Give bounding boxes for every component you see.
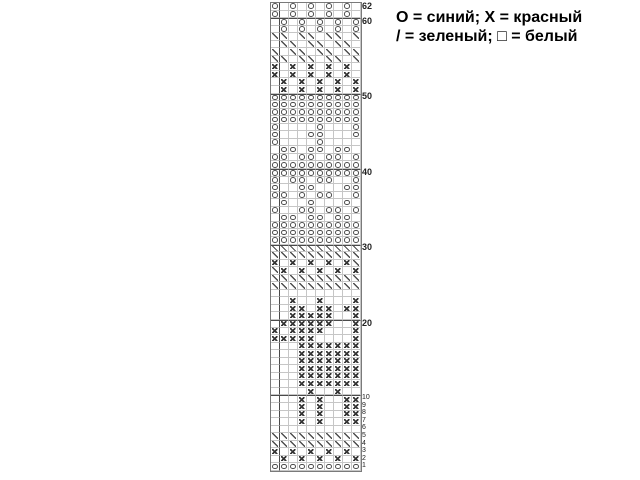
- chart-cell: [307, 94, 316, 102]
- chart-cell: [334, 71, 343, 79]
- chart-cell: [334, 86, 343, 94]
- chart-cell: [298, 343, 307, 351]
- chart-cell: [316, 411, 325, 419]
- chart-cell: [325, 116, 334, 124]
- chart-cell: [334, 373, 343, 381]
- chart-cell: [298, 101, 307, 109]
- chart-cell: [316, 275, 325, 283]
- chart-cell: [334, 109, 343, 117]
- chart-cell: [325, 290, 334, 298]
- chart-cell: [307, 275, 316, 283]
- chart-cell: [352, 282, 361, 290]
- chart-cell: [343, 169, 352, 177]
- chart-cell: [334, 18, 343, 26]
- chart-cell: [289, 214, 298, 222]
- chart-cell: [352, 350, 361, 358]
- chart-cell: [334, 222, 343, 230]
- chart-cell: [280, 11, 289, 19]
- chart-cell: [280, 297, 289, 305]
- chart-cell: [334, 48, 343, 56]
- chart-cell: [289, 116, 298, 124]
- chart-cell: [343, 41, 352, 49]
- chart-cell: [307, 320, 316, 328]
- chart-cell: [280, 78, 289, 86]
- chart-cell: [289, 433, 298, 441]
- chart-cell: [334, 56, 343, 64]
- chart-cell: [316, 71, 325, 79]
- chart-cell: [280, 365, 289, 373]
- chart-cell: [352, 192, 361, 200]
- chart-cell: [271, 3, 280, 11]
- chart-cell: [271, 41, 280, 49]
- chart-cell: [271, 275, 280, 283]
- chart-cell: [325, 63, 334, 71]
- chart-cell: [316, 78, 325, 86]
- chart-cell: [334, 365, 343, 373]
- chart-cell: [298, 11, 307, 19]
- chart-cell: [325, 441, 334, 449]
- chart-cell: [280, 154, 289, 162]
- chart-cell: [298, 441, 307, 449]
- chart-cell: [298, 426, 307, 434]
- chart-cell: [271, 33, 280, 41]
- chart-cell: [280, 328, 289, 336]
- chart-cell: [334, 116, 343, 124]
- chart-cell: [307, 101, 316, 109]
- chart-cell: [298, 395, 307, 403]
- chart-cell: [343, 101, 352, 109]
- chart-cell: [325, 71, 334, 79]
- chart-cell: [307, 365, 316, 373]
- chart-cell: [271, 11, 280, 19]
- chart-cell: [271, 433, 280, 441]
- chart-cell: [298, 116, 307, 124]
- chart-cell: [316, 365, 325, 373]
- chart-cell: [298, 260, 307, 268]
- row-number-label: 60: [362, 16, 372, 26]
- chart-cell: [334, 199, 343, 207]
- chart-cell: [298, 18, 307, 26]
- chart-cell: [298, 177, 307, 185]
- legend-line-2: / = зеленый; □ = белый: [396, 27, 582, 46]
- chart-cell: [289, 426, 298, 434]
- chart-cell: [271, 441, 280, 449]
- chart-cell: [289, 237, 298, 245]
- chart-cell: [316, 433, 325, 441]
- chart-cell: [316, 86, 325, 94]
- chart-cell: [334, 214, 343, 222]
- chart-cell: [316, 101, 325, 109]
- chart-cell: [343, 297, 352, 305]
- chart-cell: [352, 358, 361, 366]
- chart-cell: [271, 207, 280, 215]
- chart-cell: [298, 275, 307, 283]
- chart-cell: [352, 131, 361, 139]
- chart-cell: [289, 305, 298, 313]
- chart-cell: [298, 33, 307, 41]
- chart-cell: [271, 26, 280, 34]
- chart-cell: [334, 177, 343, 185]
- chart-cell: [316, 116, 325, 124]
- chart-cell: [280, 124, 289, 132]
- chart-cell: [271, 86, 280, 94]
- chart-cell: [343, 71, 352, 79]
- chart-cell: [343, 116, 352, 124]
- chart-cell: [316, 328, 325, 336]
- chart-cell: [352, 411, 361, 419]
- chart-cell: [307, 411, 316, 419]
- chart-cell: [271, 184, 280, 192]
- chart-cell: [334, 358, 343, 366]
- chart-cell: [343, 448, 352, 456]
- chart-cell: [343, 161, 352, 169]
- chart-cell: [307, 161, 316, 169]
- chart-cell: [325, 418, 334, 426]
- chart-cell: [280, 3, 289, 11]
- chart-cell: [352, 418, 361, 426]
- chart-cell: [343, 154, 352, 162]
- chart-cell: [298, 403, 307, 411]
- chart-cell: [352, 109, 361, 117]
- chart-cell: [325, 275, 334, 283]
- chart-cell: [334, 463, 343, 471]
- chart-cell: [289, 207, 298, 215]
- chart-cell: [307, 335, 316, 343]
- chart-cell: [334, 441, 343, 449]
- chart-cell: [298, 350, 307, 358]
- chart-cell: [343, 26, 352, 34]
- chart-cell: [271, 335, 280, 343]
- chart-cell: [298, 109, 307, 117]
- chart-cell: [316, 380, 325, 388]
- chart-cell: [280, 380, 289, 388]
- chart-cell: [325, 282, 334, 290]
- chart-cell: [271, 71, 280, 79]
- chart-cell: [325, 229, 334, 237]
- chart-cell: [289, 94, 298, 102]
- chart-cell: [352, 177, 361, 185]
- chart-cell: [271, 63, 280, 71]
- chart-cell: [325, 237, 334, 245]
- chart-cell: [271, 282, 280, 290]
- chart-cell: [352, 335, 361, 343]
- chart-cell: [343, 418, 352, 426]
- chart-cell: [298, 418, 307, 426]
- chart-cell: [298, 184, 307, 192]
- chart-cell: [352, 56, 361, 64]
- chart-cell: [271, 380, 280, 388]
- chart-cell: [307, 305, 316, 313]
- chart-cell: [280, 275, 289, 283]
- chart-cell: [307, 463, 316, 471]
- chart-cell: [280, 395, 289, 403]
- chart-cell: [280, 245, 289, 253]
- chart-cell: [352, 328, 361, 336]
- chart-cell: [307, 260, 316, 268]
- chart-cell: [298, 199, 307, 207]
- chart-cell: [343, 18, 352, 26]
- chart-cell: [325, 305, 334, 313]
- chart-cell: [307, 63, 316, 71]
- chart-cell: [316, 373, 325, 381]
- chart-cell: [307, 131, 316, 139]
- chart-cell: [352, 184, 361, 192]
- chart-cell: [334, 350, 343, 358]
- chart-cell: [325, 350, 334, 358]
- chart-cell: [280, 290, 289, 298]
- chart-cell: [298, 433, 307, 441]
- chart-cell: [316, 252, 325, 260]
- chart-cell: [280, 199, 289, 207]
- chart-cell: [343, 94, 352, 102]
- chart-cell: [343, 56, 352, 64]
- chart-cell: [289, 26, 298, 34]
- chart-cell: [289, 320, 298, 328]
- chart-cell: [271, 78, 280, 86]
- chart-cell: [298, 448, 307, 456]
- chart-cell: [352, 214, 361, 222]
- chart-cell: [325, 124, 334, 132]
- chart-cell: [271, 18, 280, 26]
- chart-cell: [271, 365, 280, 373]
- chart-cell: [343, 290, 352, 298]
- chart-cell: [307, 207, 316, 215]
- chart-cell: [325, 245, 334, 253]
- chart-cell: [325, 328, 334, 336]
- chart-cell: [307, 448, 316, 456]
- chart-cell: [280, 131, 289, 139]
- chart-cell: [334, 154, 343, 162]
- chart-cell: [343, 199, 352, 207]
- chart-cell: [352, 245, 361, 253]
- chart-cell: [334, 290, 343, 298]
- chart-cell: [316, 358, 325, 366]
- chart-cell: [298, 358, 307, 366]
- chart-cell: [271, 109, 280, 117]
- chart-cell: [280, 260, 289, 268]
- chart-cell: [352, 237, 361, 245]
- chart-cell: [316, 282, 325, 290]
- chart-cell: [271, 94, 280, 102]
- chart-cell: [280, 94, 289, 102]
- chart-cell: [307, 169, 316, 177]
- chart-cell: [352, 373, 361, 381]
- chart-cell: [334, 245, 343, 253]
- chart-cell: [280, 426, 289, 434]
- chart-cell: [325, 3, 334, 11]
- chart-cell: [334, 41, 343, 49]
- chart-cell: [316, 146, 325, 154]
- chart-cell: [334, 146, 343, 154]
- chart-cell: [325, 411, 334, 419]
- chart-cell: [280, 222, 289, 230]
- chart-cell: [307, 214, 316, 222]
- chart-cell: [289, 139, 298, 147]
- chart-cell: [343, 245, 352, 253]
- chart-cell: [325, 56, 334, 64]
- chart-cell: [343, 192, 352, 200]
- chart-cell: [289, 418, 298, 426]
- chart-cell: [307, 388, 316, 396]
- chart-cell: [289, 260, 298, 268]
- chart-cell: [334, 343, 343, 351]
- chart-cell: [325, 78, 334, 86]
- chart-cell: [325, 33, 334, 41]
- chart-cell: [334, 335, 343, 343]
- chart-cell: [271, 154, 280, 162]
- chart-cell: [334, 426, 343, 434]
- chart-cell: [280, 335, 289, 343]
- chart-cell: [352, 48, 361, 56]
- chart-cell: [334, 433, 343, 441]
- chart-cell: [352, 86, 361, 94]
- chart-cell: [280, 109, 289, 117]
- chart-cell: [280, 320, 289, 328]
- chart-cell: [307, 297, 316, 305]
- chart-cell: [280, 161, 289, 169]
- chart-cell: [298, 139, 307, 147]
- chart-cell: [334, 78, 343, 86]
- chart-cell: [298, 365, 307, 373]
- chart-cell: [298, 124, 307, 132]
- color-legend: О = синий; Х = красный / = зеленый; □ = …: [396, 8, 582, 46]
- chart-cell: [298, 56, 307, 64]
- row-number-label: 40: [362, 167, 372, 177]
- chart-cell: [298, 373, 307, 381]
- chart-cell: [271, 169, 280, 177]
- chart-cell: [271, 245, 280, 253]
- chart-cell: [289, 441, 298, 449]
- chart-cell: [343, 312, 352, 320]
- chart-cell: [325, 403, 334, 411]
- chart-cell: [316, 11, 325, 19]
- chart-cell: [271, 463, 280, 471]
- chart-cell: [280, 229, 289, 237]
- chart-cell: [343, 222, 352, 230]
- chart-cell: [316, 305, 325, 313]
- chart-cell: [271, 192, 280, 200]
- chart-cell: [343, 275, 352, 283]
- chart-cell: [280, 433, 289, 441]
- row-number-label: 62: [362, 1, 372, 11]
- chart-cell: [289, 199, 298, 207]
- legend-line-1: О = синий; Х = красный: [396, 8, 582, 27]
- chart-cell: [298, 388, 307, 396]
- chart-cell: [343, 380, 352, 388]
- chart-cell: [334, 139, 343, 147]
- chart-cell: [271, 252, 280, 260]
- chart-cell: [325, 169, 334, 177]
- chart-cell: [343, 146, 352, 154]
- chart-cell: [298, 229, 307, 237]
- chart-cell: [316, 41, 325, 49]
- chart-cell: [280, 26, 289, 34]
- chart-cell: [289, 358, 298, 366]
- chart-cell: [298, 192, 307, 200]
- chart-cell: [325, 18, 334, 26]
- chart-cell: [307, 433, 316, 441]
- chart-cell: [325, 199, 334, 207]
- chart-cell: [352, 41, 361, 49]
- chart-cell: [352, 297, 361, 305]
- chart-cell: [325, 207, 334, 215]
- chart-cell: [289, 56, 298, 64]
- chart-cell: [352, 448, 361, 456]
- chart-cell: [271, 297, 280, 305]
- chart-cell: [280, 343, 289, 351]
- chart-cell: [289, 229, 298, 237]
- chart-cell: [316, 33, 325, 41]
- chart-cell: [325, 448, 334, 456]
- row-number-label: 50: [362, 91, 372, 101]
- chart-cell: [316, 335, 325, 343]
- chart-cell: [289, 48, 298, 56]
- chart-cell: [298, 48, 307, 56]
- chart-cell: [298, 320, 307, 328]
- chart-cell: [298, 380, 307, 388]
- chart-cell: [289, 161, 298, 169]
- chart-cell: [325, 146, 334, 154]
- chart-cell: [343, 373, 352, 381]
- chart-cell: [289, 373, 298, 381]
- chart-cell: [352, 146, 361, 154]
- chart-cell: [271, 373, 280, 381]
- chart-cell: [352, 199, 361, 207]
- chart-cell: [334, 312, 343, 320]
- chart-cell: [307, 237, 316, 245]
- chart-cell: [280, 116, 289, 124]
- chart-cell: [307, 252, 316, 260]
- scanned-knitting-chart-page: 62605040302010987654321 О = синий; Х = к…: [0, 0, 640, 480]
- chart-cell: [316, 48, 325, 56]
- chart-cell: [280, 312, 289, 320]
- chart-cell: [289, 169, 298, 177]
- chart-cell: [316, 456, 325, 464]
- chart-cell: [289, 101, 298, 109]
- chart-cell: [289, 275, 298, 283]
- chart-cell: [298, 26, 307, 34]
- chart-cell: [334, 388, 343, 396]
- chart-cell: [307, 350, 316, 358]
- chart-cell: [325, 109, 334, 117]
- chart-cell: [343, 48, 352, 56]
- chart-cell: [298, 86, 307, 94]
- chart-cell: [289, 131, 298, 139]
- chart-cell: [289, 33, 298, 41]
- chart-cell: [316, 320, 325, 328]
- chart-cell: [298, 222, 307, 230]
- chart-cell: [334, 192, 343, 200]
- chart-cell: [343, 177, 352, 185]
- chart-cell: [325, 343, 334, 351]
- chart-cell: [289, 222, 298, 230]
- chart-cell: [280, 101, 289, 109]
- chart-cell: [289, 71, 298, 79]
- chart-cell: [343, 456, 352, 464]
- chart-cell: [352, 365, 361, 373]
- chart-cell: [298, 94, 307, 102]
- chart-cell: [280, 267, 289, 275]
- chart-cell: [289, 245, 298, 253]
- chart-cell: [325, 139, 334, 147]
- chart-cell: [325, 131, 334, 139]
- chart-cell: [334, 63, 343, 71]
- chart-cell: [316, 124, 325, 132]
- chart-cell: [316, 56, 325, 64]
- chart-cell: [289, 78, 298, 86]
- chart-cell: [325, 365, 334, 373]
- chart-cell: [325, 320, 334, 328]
